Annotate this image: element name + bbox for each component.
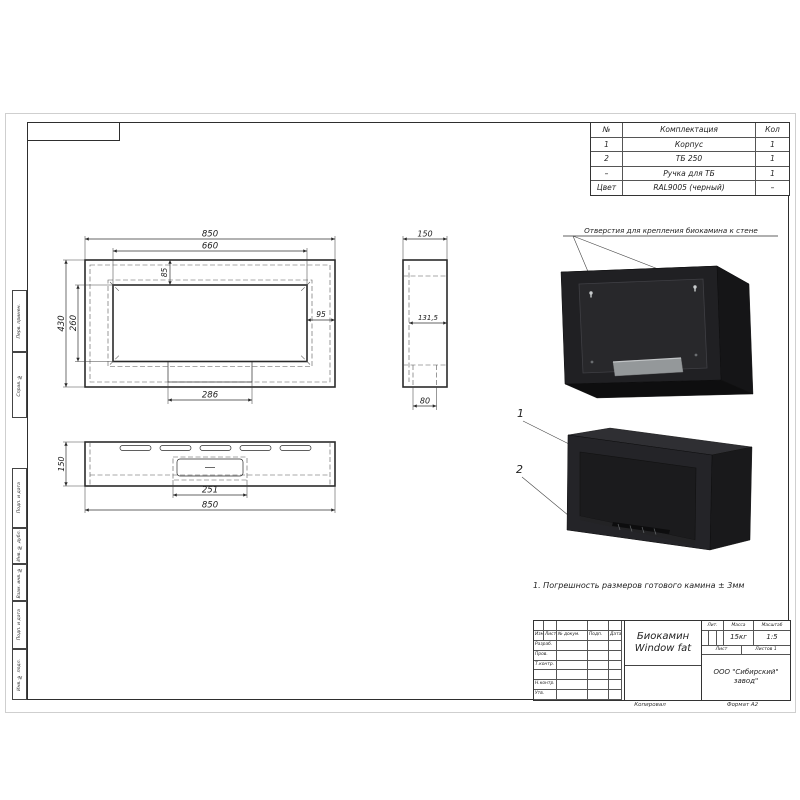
margin-label: Подп. и дата: [17, 482, 22, 513]
back-panel: [579, 279, 707, 373]
parts-table: № Комплектация Кол 1 Корпус 1 2 ТБ 250 1…: [590, 122, 790, 196]
cell-name: ТБ 250: [623, 152, 756, 167]
top-view-drawing: 150 251 850: [60, 432, 370, 542]
col-header-qty: Кол: [756, 123, 789, 138]
dim-251: 251: [202, 486, 218, 496]
col-data: Дата: [609, 631, 622, 641]
side-view-drawing: 150 131,5 80: [385, 228, 475, 483]
row-nkontr: Н.контр.: [534, 680, 557, 690]
dim-850: 850: [202, 501, 218, 511]
top-view-outline: [85, 442, 335, 486]
cell-qty: 1: [756, 167, 789, 182]
cell-name: Корпус: [623, 138, 756, 153]
callout-1: 1: [517, 407, 524, 420]
col-list: Лист: [544, 631, 557, 641]
dim-286: 286: [202, 391, 219, 401]
cell-qty: 1: [756, 152, 789, 167]
format-label: Формат А2: [700, 702, 785, 708]
top-view-dimensions: 150 251 850: [57, 442, 335, 513]
fireplace-back-3d: [561, 266, 753, 398]
margin-label: Инв. № подл.: [17, 659, 22, 691]
dim-150: 150: [57, 456, 66, 471]
fireplace-front-3d: [567, 428, 752, 550]
dim-85: 85: [160, 268, 169, 278]
cell-no: 1: [591, 138, 623, 153]
dim-850: 850: [202, 230, 218, 240]
dim-95: 95: [316, 310, 326, 319]
title-block: Изм. Лист № докум. Подп. Дата Разраб. Пр…: [533, 620, 791, 701]
table-row: 2 ТБ 250 1: [591, 152, 789, 167]
title-block-name: Биокамин Window fat: [624, 621, 702, 700]
row-razrab: Разраб.: [534, 641, 557, 651]
cell-name: Ручка для ТБ: [623, 167, 756, 182]
scale-value: 1:5: [754, 630, 790, 646]
front-3d-view: 1 2: [498, 398, 788, 593]
doc-name-line1: Биокамин: [637, 631, 689, 644]
col-izm: Изм.: [534, 631, 544, 641]
col-header-name: Комплектация: [623, 123, 756, 138]
cell-qty: –: [756, 181, 789, 195]
margin-label: Инв. № дубл.: [17, 530, 22, 562]
dim-660: 660: [202, 242, 218, 252]
back-3d-view: Отверстия для крепления биокамина к стен…: [545, 222, 785, 417]
table-row: – Ручка для ТБ 1: [591, 167, 789, 182]
front-view-dimensions: 850 660 430 260 85 95 286: [57, 230, 335, 405]
col-podp: Подп.: [588, 631, 609, 641]
designation-box: [27, 122, 120, 141]
margin-box-podp-data-1: Подп. и дата: [12, 468, 27, 528]
col-doc: № докум.: [557, 631, 588, 641]
margin-box-podp-data-2: Подп. и дата: [12, 601, 27, 649]
doc-name-line2: Window fat: [635, 643, 691, 656]
cell-name: RAL9005 (черный): [623, 181, 756, 195]
margin-label: Взам. инв. №: [17, 567, 22, 598]
front-view-outline: [85, 260, 335, 387]
side-view-outline: [403, 260, 447, 387]
margin-box-perv-primen: Перв. примен.: [12, 290, 27, 352]
dim-150: 150: [417, 230, 432, 239]
title-block-right: Лит. Масса Масштаб 15кг 1:5 Лист Листов …: [702, 621, 790, 700]
margin-box-inv-podl: Инв. № подл.: [12, 649, 27, 700]
mounting-annotation: Отверстия для крепления биокамина к стен…: [584, 226, 758, 235]
mass-value: 15кг: [724, 630, 754, 646]
dim-260: 260: [69, 315, 79, 331]
margin-box-vzam-inv: Взам. инв. №: [12, 564, 27, 601]
row-tkontr: Т.контр.: [534, 661, 557, 671]
dim-131-5: 131,5: [418, 314, 439, 322]
col-header-no: №: [591, 123, 623, 138]
table-row: 1 Корпус 1: [591, 138, 789, 153]
copy-label: Копировал: [600, 702, 700, 708]
company-name: ООО "Сибирский" завод": [702, 654, 790, 700]
margin-label: Справ. №: [17, 374, 22, 397]
cell-no: 2: [591, 152, 623, 167]
table-row: Цвет RAL9005 (черный) –: [591, 181, 789, 195]
margin-box-inv-dubl: Инв. № дубл.: [12, 528, 27, 564]
row-prov: Пров.: [534, 651, 557, 661]
margin-box-sprav: Справ. №: [12, 352, 27, 418]
drawing-canvas: Перв. примен. Справ. № Подп. и дата Инв.…: [0, 0, 800, 800]
callout-2: 2: [516, 463, 523, 476]
parts-table-header: № Комплектация Кол: [591, 123, 789, 138]
cell-qty: 1: [756, 138, 789, 153]
dim-80: 80: [420, 397, 430, 406]
cell-no: Цвет: [591, 181, 623, 195]
row-utv: Утв.: [534, 690, 557, 700]
margin-label: Подп. и дата: [17, 609, 22, 640]
side-view-dimensions: 150 131,5 80: [403, 230, 447, 411]
margin-label: Перв. примен.: [17, 304, 22, 339]
title-block-signatures: Изм. Лист № докум. Подп. Дата Разраб. Пр…: [534, 621, 624, 700]
dim-430: 430: [57, 315, 67, 331]
cell-no: –: [591, 167, 623, 182]
tolerance-note: 1. Погрешность размеров готового камина …: [533, 581, 744, 590]
